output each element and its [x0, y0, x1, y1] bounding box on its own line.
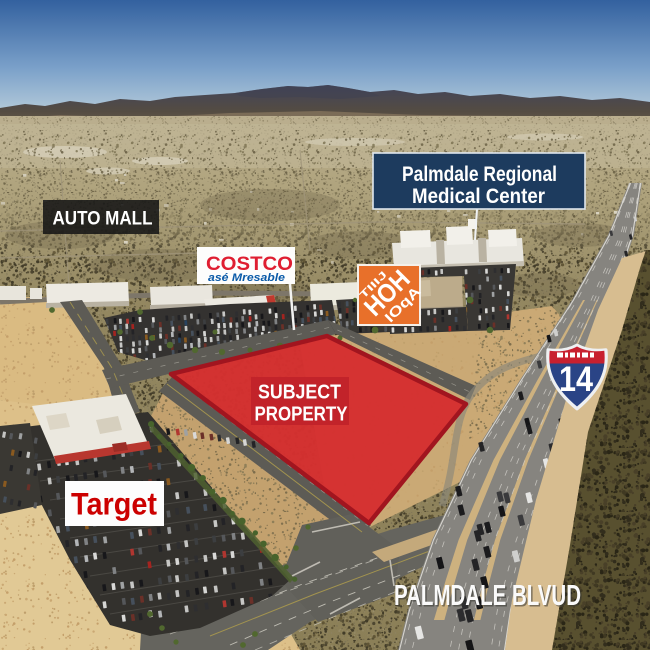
svg-text:PROPERTY: PROPERTY [255, 404, 349, 426]
svg-text:asé Mresable: asé Mresable [208, 272, 285, 284]
svg-text:Palmdale Regional: Palmdale Regional [402, 163, 557, 186]
svg-text:AUTO MALL: AUTO MALL [53, 208, 153, 230]
svg-text:Target: Target [71, 486, 157, 522]
svg-text:PALMDALE BLVUD: PALMDALE BLVUD [394, 580, 581, 612]
svg-text:Medical Center: Medical Center [412, 185, 545, 208]
svg-text:14: 14 [559, 360, 593, 399]
svg-text:SUBJECT: SUBJECT [258, 382, 341, 404]
